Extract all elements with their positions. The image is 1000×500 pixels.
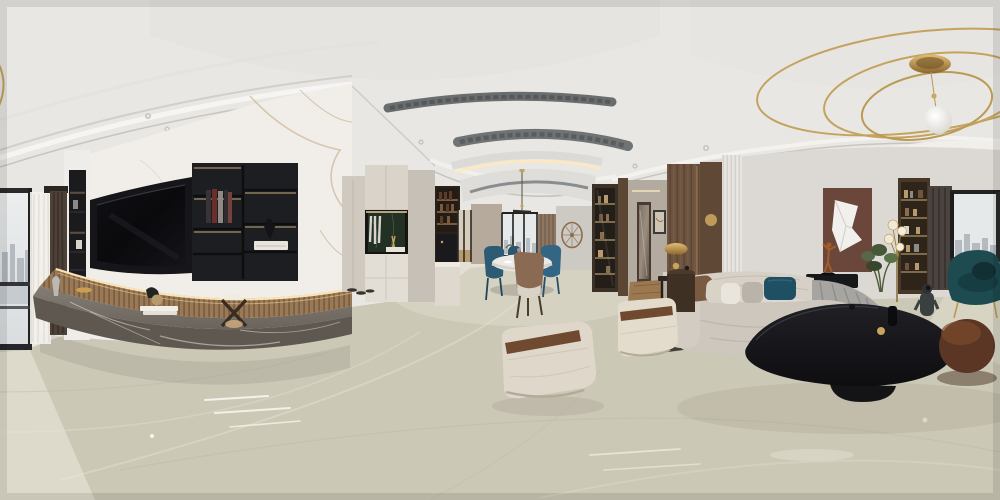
window-frame-top <box>950 190 1000 194</box>
gold-sphere-decor <box>673 263 679 269</box>
pillow-white <box>721 283 740 304</box>
framed-art <box>653 210 666 234</box>
round-box <box>152 295 163 306</box>
pendant-canopy <box>520 169 525 172</box>
black-shelf-unit <box>192 163 298 281</box>
spotlight <box>418 139 423 144</box>
rack-lamp-glow <box>225 320 243 328</box>
dark-cup <box>685 266 689 270</box>
white-book-stack <box>143 311 177 315</box>
foyer-corner-panel <box>408 170 435 302</box>
niche-object <box>76 240 82 249</box>
chandelier-globe <box>924 106 952 134</box>
coffee-machine <box>436 234 458 262</box>
stem-ball <box>931 93 936 98</box>
gold-object <box>877 327 885 335</box>
round-wall-art <box>562 223 582 248</box>
rack-books <box>226 294 242 300</box>
niche-object <box>73 200 78 209</box>
chair-pillow <box>972 262 996 280</box>
flowers <box>517 248 521 252</box>
leather-ottoman-b <box>618 298 678 356</box>
black-vase <box>888 306 897 326</box>
spotlight <box>703 145 709 151</box>
hutch-counter <box>435 262 460 267</box>
spotlight <box>145 113 151 119</box>
brass-mushroom-lamp <box>665 243 688 255</box>
glass-display-cabinet <box>592 184 618 292</box>
sculpture-base <box>821 272 835 275</box>
leather-ottoman-a <box>502 322 596 398</box>
foyer <box>342 165 460 306</box>
green-marble-back <box>368 212 405 252</box>
canopy-detail <box>916 57 944 69</box>
coffee-machine-light <box>441 241 443 243</box>
round-brown-pouf <box>937 319 997 386</box>
gold-dish <box>76 287 92 292</box>
black-mug <box>849 304 855 310</box>
spotlight <box>632 163 637 168</box>
wood-trim-strip <box>618 178 628 296</box>
black-niche-shelf <box>69 170 86 286</box>
gold-wall-art <box>705 214 717 226</box>
ottoman-reflection <box>492 396 604 416</box>
hutch-lower <box>435 267 460 306</box>
wine-coffee-column <box>435 186 460 306</box>
books <box>206 189 232 223</box>
pendant-bar <box>513 211 531 212</box>
glass-door <box>458 210 471 262</box>
pouf-highlight <box>941 321 981 345</box>
panorama-image <box>0 0 1000 500</box>
fluted-panel <box>722 155 742 288</box>
white-book-stack <box>140 306 178 311</box>
pendant-ball <box>520 204 523 207</box>
niche-body <box>69 170 86 286</box>
niche-books <box>386 247 405 252</box>
pillow-gray <box>742 282 763 303</box>
green-marble-niche <box>365 210 408 254</box>
panorama-screenshot <box>0 0 1000 500</box>
bookshelf <box>898 178 930 294</box>
mirror-door <box>637 202 651 282</box>
